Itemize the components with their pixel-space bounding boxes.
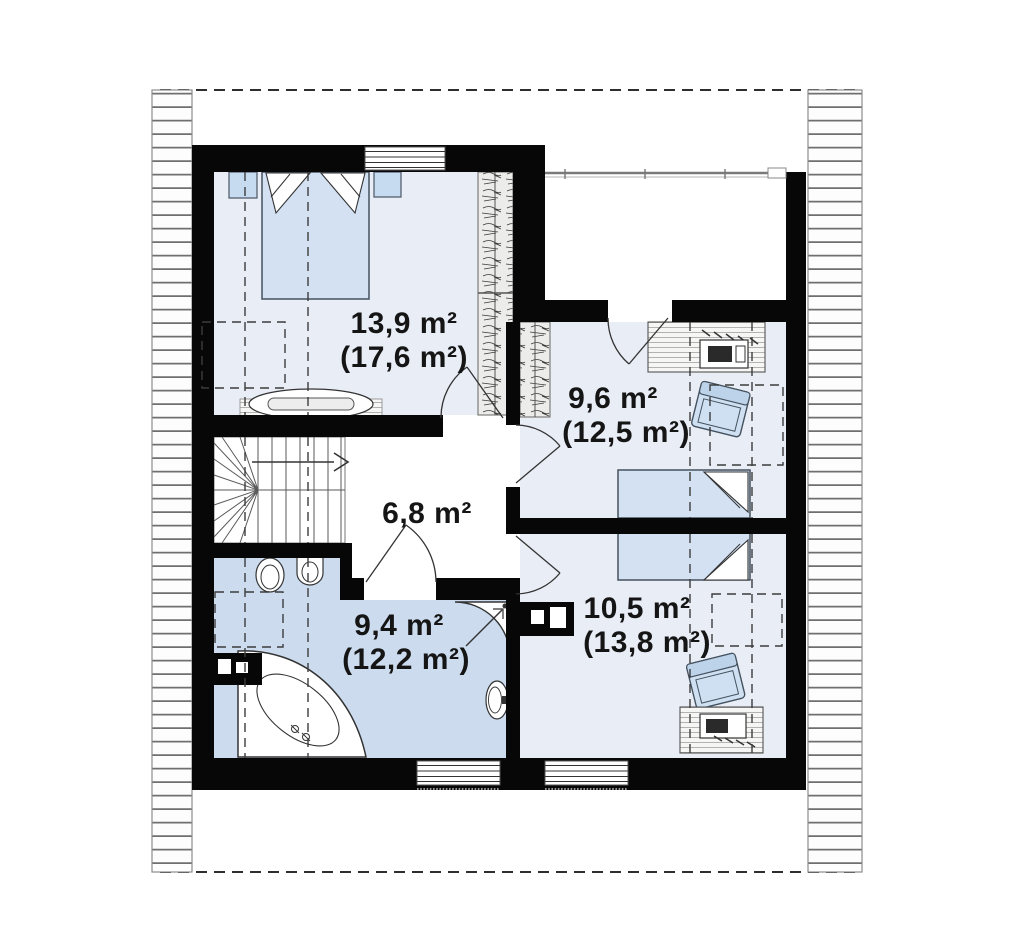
label-bathroom-gross: (12,2 m²) [342,643,470,676]
nightstand-right-icon [374,172,401,197]
window-bathroom-bottom-icon [417,761,500,789]
wall-void-bottom-right [672,300,806,322]
wall-hall-right-upper [506,322,520,425]
wall-bedroom-bottom [214,415,443,437]
wall-between-right-rooms [506,518,806,534]
wall-right [786,172,806,790]
label-room96-area: 9,6 m² [568,382,658,415]
desk-keyboard2-icon [706,719,728,733]
wall-stairs-bottom [214,543,352,558]
chimney-duct-left-icon [212,653,262,685]
single-bed-room105-icon [618,532,750,580]
wall-bedroom-right [513,145,545,322]
wall-bath-jog [340,543,352,600]
label-bedroom-gross: (17,6 m²) [340,341,468,374]
label-bedroom-area: 13,9 m² [351,307,458,340]
roof-hatch-left [152,90,192,872]
label-room96-gross: (12,5 m²) [562,416,690,449]
wall-void-bottom-left [513,300,608,322]
wall-left [192,145,214,790]
desk-room96-icon [648,322,765,372]
desk-keyboard-icon [708,346,732,362]
desk-room105-icon [680,707,763,753]
window-room105-bottom-icon [545,761,628,789]
label-hall-area: 6,8 m² [382,497,472,530]
window-bedroom-top-icon [365,147,445,170]
floor-plan-canvas: 13,9 m² (17,6 m²) 9,6 m² (12,5 m²) 6,8 m… [0,0,1024,933]
label-room105-gross: (13,8 m²) [583,626,711,659]
chimney-duct-right-icon [518,602,574,636]
wall-bath-right [506,595,520,758]
wardrobe-room96-icon [520,322,550,417]
attic-floor-plan: 13,9 m² (17,6 m²) 9,6 m² (12,5 m²) 6,8 m… [0,0,1024,933]
staircase [214,437,348,543]
single-bed-room96-icon [618,470,750,518]
label-bathroom-area: 9,4 m² [354,609,444,642]
washbasin-icon [486,681,508,719]
wall-bath-top-left [352,578,364,600]
label-room105-area: 10,5 m² [584,592,691,625]
nightstand-left-icon [229,172,257,198]
roof-hatch-right [808,90,862,872]
